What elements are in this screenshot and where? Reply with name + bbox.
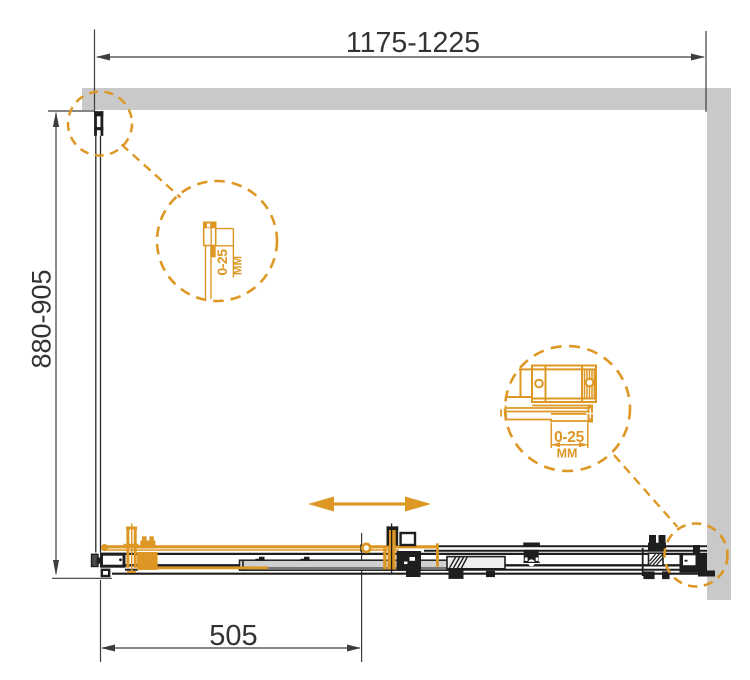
svg-text:505: 505 [209,620,257,652]
svg-text:0-25: 0-25 [214,249,230,276]
svg-text:ММ: ММ [557,447,578,461]
svg-text:1175-1225: 1175-1225 [346,27,480,59]
svg-text:880-905: 880-905 [27,269,57,368]
svg-text:0-25: 0-25 [554,429,585,446]
svg-text:ММ: ММ [233,256,245,275]
